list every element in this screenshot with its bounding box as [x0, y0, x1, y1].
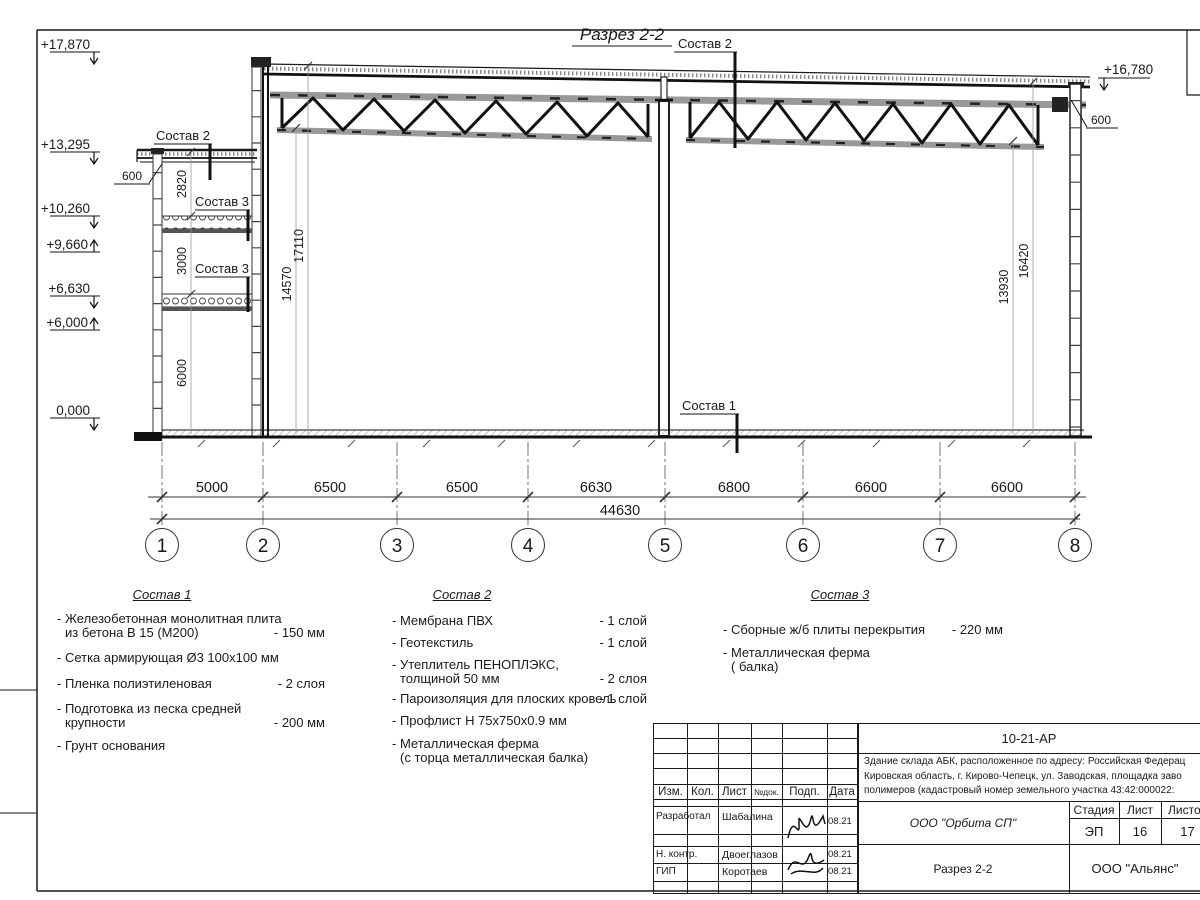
grid-label-8: 8: [1070, 536, 1081, 557]
dim-5000: 5000: [196, 480, 228, 496]
legend1-item: - Пленка полиэтиленовая - 2 слоя: [57, 677, 325, 691]
tb-role-gip: ГИП: [656, 866, 718, 877]
tb-doc-number: 10-21-АР: [857, 724, 1200, 753]
truss-top-chord: [270, 95, 1086, 105]
legend-line: - Пленка полиэтиленовая: [57, 676, 212, 691]
callout-sostav3-upper: Состав 3: [195, 194, 249, 209]
page-title: Разрез 2-2: [580, 25, 665, 44]
legend2-item: - Пароизоляция для плоских кровель - 1 с…: [392, 692, 647, 706]
tb-sheet-value: 16: [1119, 818, 1161, 844]
tb-col-ndok: №док.: [751, 784, 782, 799]
legend-line: - Сетка армирующая Ø3 100x100 мм: [57, 650, 279, 665]
legend2-item: - Профлист Н 75х750х0.9 мм: [392, 714, 647, 728]
elev-6000: +6,000: [46, 315, 88, 330]
callout-sostav2-roof: Состав 2: [678, 36, 732, 51]
legend-value: - 1 слой: [599, 692, 647, 706]
legend-line: - Подготовка из песка средней: [57, 701, 241, 716]
tb-description-line: полимеров (кадастровый номер земельного …: [864, 784, 1200, 799]
legend-value: - 2 слоя: [600, 672, 647, 686]
legend-value: - 2 слоя: [278, 677, 325, 691]
legend-sostav1: Состав 1 - Железобетонная монолитная пли…: [57, 588, 325, 768]
legend-value: - 220 мм: [952, 623, 1003, 637]
dim-6000: 6000: [175, 359, 189, 387]
tb-name-developer: Шабалина: [722, 811, 780, 823]
legend2-item: - Мембрана ПВХ - 1 слой: [392, 614, 647, 628]
grid-label-5: 5: [660, 536, 671, 557]
dim-3000: 3000: [175, 247, 189, 275]
grid5-column: [655, 77, 673, 436]
tb-description-line: Кировская область, г. Кирово-Чепецк, ул.…: [864, 770, 1200, 785]
drawing-sheet: { "title": "Разрез 2-2", "section": { "e…: [0, 0, 1200, 900]
grid-label-7: 7: [935, 536, 946, 557]
tb-firm: ООО "Альянс": [1069, 844, 1200, 893]
elevation-mark-right: [1098, 78, 1150, 90]
dim-17110: 17110: [292, 229, 306, 263]
main-roof: [264, 64, 1090, 87]
legend1-item: - Сетка армирующая Ø3 100x100 мм: [57, 651, 325, 665]
dim-6500b: 6500: [446, 480, 478, 496]
truss-span-a: [277, 98, 652, 139]
tb-date-developer: 08.21: [828, 816, 857, 827]
legend-value: - 1 слой: [599, 614, 647, 628]
signature: [784, 844, 826, 882]
tb-sheets-value: 17: [1161, 818, 1200, 844]
truss-span-b: [686, 102, 1044, 147]
tb-col-list: Лист: [718, 784, 751, 799]
vertical-dim-lines: [187, 62, 1037, 434]
legend-line: - Металлическая ферма: [392, 736, 539, 751]
callout-sostav2-annex: Состав 2: [156, 128, 210, 143]
legend2-title: Состав 2: [397, 588, 527, 602]
legend-line: - Геотекстиль: [392, 635, 473, 650]
legend1-item: - Железобетонная монолитная плита из бет…: [57, 612, 325, 640]
dim-6630: 6630: [580, 480, 612, 496]
svg-text:600: 600: [122, 169, 142, 183]
legend-line: - Мембрана ПВХ: [392, 613, 493, 628]
dim-6800: 6800: [718, 480, 750, 496]
grid-label-2: 2: [258, 536, 269, 557]
legend3-item: - Металлическая ферма ( балка): [723, 646, 1003, 674]
elev-10260: +10,260: [41, 201, 90, 216]
tb-date-gip: 08.21: [828, 866, 857, 877]
grid-bubbles: [146, 529, 1092, 562]
callout-sostav3-lower: Состав 3: [195, 261, 249, 276]
floor-slab: [134, 430, 1092, 447]
elev-0000: 0,000: [56, 403, 90, 418]
legend2-item: - Геотекстиль - 1 слой: [392, 636, 647, 650]
legend-line: - Металлическая ферма: [723, 645, 870, 660]
legend3-title: Состав 3: [775, 588, 905, 602]
legend1-item: - Грунт основания: [57, 739, 325, 753]
elev-17870: +17,870: [41, 37, 90, 52]
legend-line: - Сборные ж/б плиты перекрытия: [723, 622, 925, 637]
legend-value: - 150 мм: [274, 626, 325, 640]
legend-sostav3: Состав 3 - Сборные ж/б плиты перекрытия …: [723, 588, 1003, 688]
dim-16420: 16420: [1017, 244, 1031, 279]
tb-sheet-label: Лист: [1119, 801, 1161, 818]
elev-9660: +9,660: [46, 237, 88, 252]
tb-col-data: Дата: [827, 784, 857, 799]
tb-sheets-label: Листов: [1161, 801, 1200, 818]
signature: [784, 804, 826, 848]
tb-col-izm: Изм.: [654, 784, 687, 799]
callout-sostav1-floor: Состав 1: [682, 398, 736, 413]
tb-role-developer: Разработал: [656, 811, 718, 822]
tb-col-podp: Подп.: [782, 784, 827, 799]
legend-line: - Пароизоляция для плоских кровель: [392, 691, 616, 706]
dim-14570: 14570: [280, 267, 294, 302]
legend-line: ( балка): [723, 660, 1003, 674]
tb-name-gip: Коротаев: [722, 866, 784, 878]
legend-value: - 200 мм: [274, 716, 325, 730]
tb-date-ncontr: 08.21: [828, 849, 857, 860]
dim-6500a: 6500: [314, 480, 346, 496]
elev-6630: +6,630: [48, 281, 90, 296]
legend1-title: Состав 1: [97, 588, 227, 602]
grid2-column: [251, 57, 271, 436]
tb-role-ncontr: Н. контр.: [656, 849, 718, 860]
tb-drawing-name: Разрез 2-2: [857, 844, 1069, 893]
legend2-item: - Металлическая ферма (с торца металличе…: [392, 737, 647, 765]
grid-label-6: 6: [798, 536, 809, 557]
dim-total-44630: 44630: [600, 503, 640, 519]
dim-2820: 2820: [175, 170, 189, 198]
legend-line: - Утеплитель ПЕНОПЛЭКС,: [392, 657, 559, 672]
dim-6600b: 6600: [991, 480, 1023, 496]
dim-6600a: 6600: [855, 480, 887, 496]
tb-name-ncontr: Двоеглазов: [722, 849, 784, 861]
grid-label-4: 4: [523, 536, 534, 557]
svg-text:600: 600: [1091, 113, 1111, 127]
tb-description: Здание склада АБК, расположенное по адре…: [864, 755, 1200, 800]
legend2-item: - Утеплитель ПЕНОПЛЭКС, толщиной 50 мм -…: [392, 658, 647, 686]
tb-company: ООО "Орбита СП": [857, 801, 1069, 844]
tb-description-line: Здание склада АБК, расположенное по адре…: [864, 755, 1200, 770]
legend-sostav2: Состав 2 - Мембрана ПВХ - 1 слой - Геоте…: [392, 588, 647, 778]
legend-value: - 1 слой: [599, 636, 647, 650]
tb-col-kol: Кол.: [687, 784, 718, 799]
legend-line: - Грунт основания: [57, 738, 165, 753]
annex-wall: [151, 148, 164, 436]
grid-label-1: 1: [157, 536, 168, 557]
elev-13295: +13,295: [41, 137, 90, 152]
legend-line: - Профлист Н 75х750х0.9 мм: [392, 713, 567, 728]
legend-line: - Железобетонная монолитная плита: [57, 611, 282, 626]
grid-label-3: 3: [392, 536, 403, 557]
grid8-wall: [1052, 82, 1084, 436]
title-block: Изм. Кол. Лист №док. Подп. Дата Разработ…: [653, 723, 1200, 894]
dim-13930: 13930: [997, 270, 1011, 305]
legend-line: (с торца металлическая балка): [392, 751, 647, 765]
legend1-item: - Подготовка из песка средней крупности …: [57, 702, 325, 730]
legend3-item: - Сборные ж/б плиты перекрытия - 220 мм: [723, 623, 1003, 637]
tb-stage-label: Стадия: [1069, 801, 1119, 818]
elev-16780: +16,780: [1104, 62, 1153, 77]
tb-stage-value: ЭП: [1069, 818, 1119, 844]
